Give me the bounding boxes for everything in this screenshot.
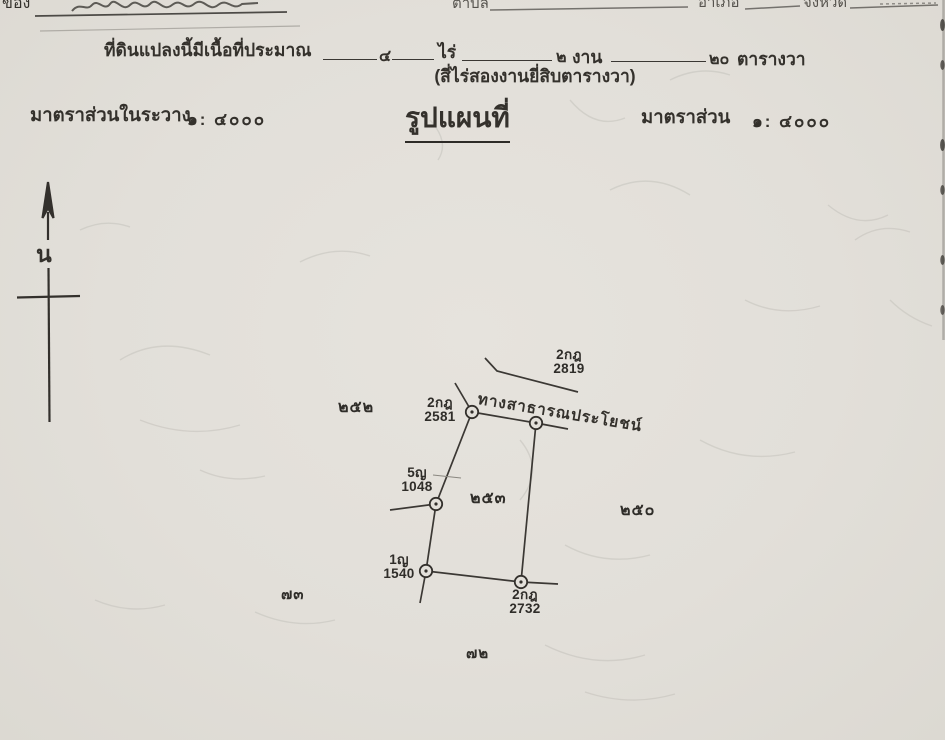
survey-point-label-2732: 2กฎ 2732 bbox=[501, 588, 549, 616]
survey-point-label-2819: 2กฎ 2819 bbox=[547, 348, 591, 376]
district-label: อำเภอ bbox=[698, 0, 739, 14]
scan-edge-artifacts bbox=[880, 0, 945, 340]
adjacent-parcel-73: ๗๓ bbox=[281, 582, 305, 606]
scale-label: มาตราส่วน bbox=[641, 103, 730, 132]
scanned-land-deed-page: ของ ตำบล อำเภอ จังหวัด ที่ดินแปลงนี้มีเน… bbox=[0, 0, 945, 740]
scale-in-sheet-label: มาตราส่วนในระวาง bbox=[30, 101, 191, 130]
survey-point-label-1540: 1ญ 1540 bbox=[378, 553, 420, 581]
scale-value: ๑: ๔๐๐๐ bbox=[752, 108, 831, 135]
subdistrict-label: ตำบล bbox=[452, 0, 489, 15]
handwritten-owner-entry bbox=[72, 2, 258, 11]
province-label: จังหวัด bbox=[803, 0, 847, 14]
area-in-words: (สี่ไร่สองงานยี่สิบตารางวา) bbox=[405, 62, 665, 90]
road-label: ทางสาธารณประโยชน์ bbox=[476, 386, 644, 438]
adjacent-parcel-72: ๗๒ bbox=[466, 641, 489, 665]
adjacent-parcel-252: ๒๕๒ bbox=[338, 395, 374, 420]
north-arrow bbox=[17, 182, 80, 422]
north-letter: น bbox=[36, 237, 52, 273]
rai-value: ๔ bbox=[379, 44, 391, 69]
blank-rule bbox=[392, 58, 434, 60]
adjacent-parcel-250: ๒๕๐ bbox=[620, 498, 655, 523]
scale-in-sheet-value: ๑: ๔๐๐๐ bbox=[187, 106, 266, 133]
wa-value: ๒๐ bbox=[709, 47, 729, 72]
survey-point-label-1048: 5ญ 1048 bbox=[396, 466, 438, 494]
survey-point-label-2581: 2กฎ 2581 bbox=[420, 396, 460, 424]
adjacent-parcel-253: ๒๕๓ bbox=[470, 486, 507, 511]
wa-unit: ตารางวา bbox=[737, 45, 806, 73]
blank-rule bbox=[323, 58, 377, 60]
area-prefix: ที่ดินแปลงนี้มีเนื้อที่ประมาณ bbox=[104, 36, 312, 64]
blank-rule bbox=[462, 59, 552, 61]
owner-label: ของ bbox=[2, 0, 30, 16]
map-title: รูปแผนที่ bbox=[405, 96, 510, 143]
